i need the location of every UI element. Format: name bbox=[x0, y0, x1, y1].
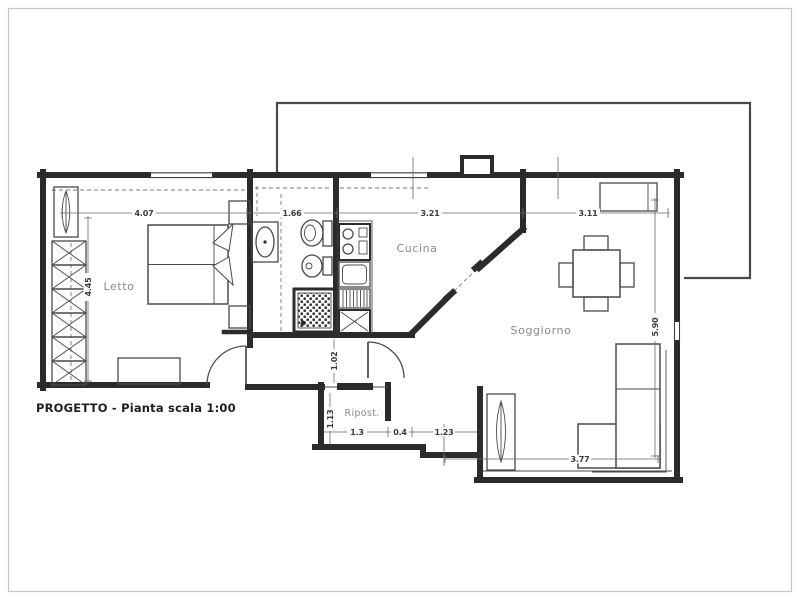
wall-corridor-bottom bbox=[315, 447, 477, 455]
bidet-inner bbox=[306, 263, 312, 269]
wall-pillar bbox=[462, 157, 492, 176]
wardrobe-x bbox=[52, 337, 86, 361]
bed-fold bbox=[213, 224, 233, 251]
dim-living-depth: 5.90 bbox=[651, 317, 660, 337]
room-label-storage: Ripost. bbox=[345, 408, 380, 419]
chair bbox=[620, 263, 634, 287]
doors bbox=[207, 342, 404, 390]
stove-outline bbox=[339, 224, 370, 260]
room-label-kitchen: Cucina bbox=[396, 242, 437, 255]
bidet-back bbox=[323, 257, 332, 275]
chair bbox=[584, 236, 608, 250]
washbasin-drain bbox=[263, 240, 266, 243]
wardrobe-x bbox=[52, 313, 86, 337]
dim-storage-depth: 1.13 bbox=[326, 410, 335, 429]
dim-hallway-width: 1.02 bbox=[330, 352, 339, 371]
nightstand bbox=[229, 306, 250, 328]
kitchen-fixtures bbox=[338, 221, 372, 333]
dim-kitchen-width: 3.21 bbox=[421, 209, 441, 218]
door-swing-arc bbox=[207, 346, 246, 385]
drainer-outline bbox=[339, 289, 370, 308]
appliance-x bbox=[341, 312, 368, 331]
dim-storage-width: 1.3 bbox=[350, 428, 364, 437]
dim-wall-thickness: 0.4 bbox=[393, 428, 407, 437]
stove-icon bbox=[339, 224, 370, 260]
living-window bbox=[675, 319, 680, 343]
dimension-lines bbox=[60, 157, 670, 466]
storage-door-bar bbox=[337, 383, 373, 390]
sink-icon bbox=[339, 262, 370, 287]
dim-sofa-wall-width: 3.77 bbox=[571, 455, 590, 464]
bathroom-fixtures bbox=[252, 220, 335, 332]
wall-diagonal-lower bbox=[411, 296, 449, 334]
dim-bedroom-depth: 4.45 bbox=[84, 277, 93, 297]
drainer bbox=[339, 289, 370, 308]
bed-fold bbox=[213, 257, 233, 285]
chair bbox=[584, 297, 608, 311]
dim-passage-width: 1.23 bbox=[435, 428, 454, 437]
room-label-living: Soggiorno bbox=[511, 324, 572, 337]
door-frame-cap bbox=[443, 288, 457, 302]
shower-drain bbox=[301, 321, 306, 326]
radiator-icon bbox=[62, 191, 70, 233]
wardrobe-x bbox=[52, 289, 86, 313]
floor-plan-drawing: 4.07 1.66 3.21 3.11 4.45 5.90 1.02 1.13 … bbox=[0, 0, 800, 600]
bench bbox=[118, 358, 180, 384]
sideboard bbox=[600, 183, 657, 211]
double-bed bbox=[148, 224, 233, 304]
radiator-icon bbox=[497, 401, 506, 462]
wardrobe-x bbox=[52, 241, 86, 265]
drainer-ribs bbox=[343, 290, 367, 307]
dim-bathroom-width: 1.66 bbox=[283, 209, 303, 218]
door-swing-arc bbox=[368, 342, 404, 378]
drawing-caption: PROGETTO - Pianta scala 1:00 bbox=[36, 401, 236, 415]
sofa-body bbox=[616, 344, 660, 468]
bedroom-window bbox=[148, 173, 215, 178]
burner bbox=[343, 229, 353, 239]
burner bbox=[343, 244, 353, 254]
table-top bbox=[573, 250, 620, 297]
radiator-bedroom bbox=[54, 187, 78, 237]
toilet-tank bbox=[323, 221, 332, 246]
bedroom-door bbox=[207, 346, 246, 385]
shower-box bbox=[294, 289, 335, 332]
hall-door bbox=[368, 342, 404, 378]
toilet-inner bbox=[305, 225, 316, 241]
wall-diagonal-upper bbox=[479, 229, 523, 268]
bidet-icon bbox=[302, 255, 332, 277]
dim-bedroom-width: 4.07 bbox=[135, 209, 154, 218]
stove-panel bbox=[359, 228, 367, 237]
room-label-bedroom: Letto bbox=[103, 280, 134, 293]
dining-table bbox=[559, 236, 634, 311]
floor-plan-page: 4.07 1.66 3.21 3.11 4.45 5.90 1.02 1.13 … bbox=[0, 0, 800, 600]
storage-door bbox=[324, 383, 388, 390]
appliance bbox=[339, 310, 370, 333]
wardrobe-x bbox=[52, 265, 86, 289]
toilet-icon bbox=[301, 220, 332, 246]
wardrobe bbox=[52, 241, 86, 385]
kitchen-window bbox=[368, 173, 430, 178]
stove-panel bbox=[359, 241, 367, 254]
sink-basin bbox=[343, 265, 367, 284]
wardrobe-x bbox=[52, 361, 86, 385]
chair bbox=[559, 263, 573, 287]
sofa bbox=[578, 344, 666, 472]
dim-living-width: 3.11 bbox=[579, 209, 599, 218]
